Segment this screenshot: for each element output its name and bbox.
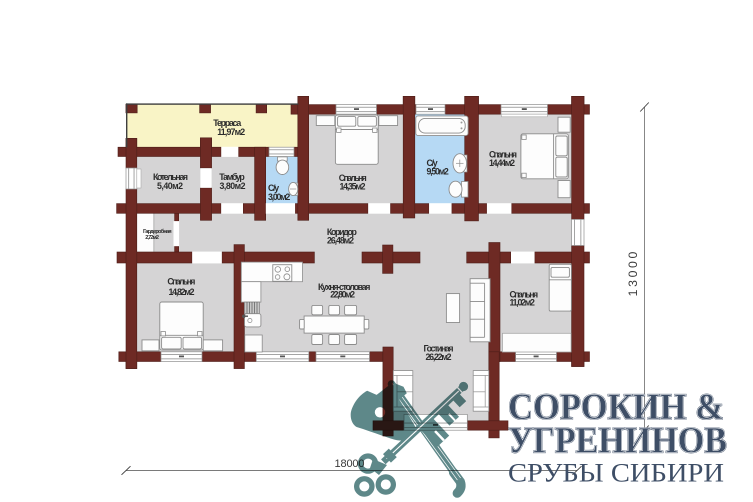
svg-text:26,22м2: 26,22м2 xyxy=(426,352,452,362)
svg-text:14,44м2: 14,44м2 xyxy=(489,158,515,168)
svg-text:УГРЕНИНОВ: УГРЕНИНОВ xyxy=(508,420,727,461)
svg-text:2,72м2: 2,72м2 xyxy=(145,235,159,241)
svg-text:3,80м2: 3,80м2 xyxy=(220,181,246,191)
svg-text:14,82м2: 14,82м2 xyxy=(169,287,195,297)
svg-text:13000: 13000 xyxy=(626,252,640,297)
svg-text:22,80м2: 22,80м2 xyxy=(330,290,355,300)
svg-text:5,40м2: 5,40м2 xyxy=(157,181,183,191)
svg-text:3,00м2: 3,00м2 xyxy=(268,192,290,202)
svg-text:СРУБЫ СИБИРИ: СРУБЫ СИБИРИ xyxy=(508,458,724,488)
svg-text:Спальня: Спальня xyxy=(167,276,195,286)
svg-text:26,48м2: 26,48м2 xyxy=(327,236,354,246)
svg-text:11,97м2: 11,97м2 xyxy=(217,127,245,137)
svg-text:11,02м2: 11,02м2 xyxy=(509,297,535,307)
svg-text:14,35м2: 14,35м2 xyxy=(340,182,366,192)
svg-text:Гардеробная: Гардеробная xyxy=(143,228,172,235)
svg-text:9,50м2: 9,50м2 xyxy=(427,167,449,177)
